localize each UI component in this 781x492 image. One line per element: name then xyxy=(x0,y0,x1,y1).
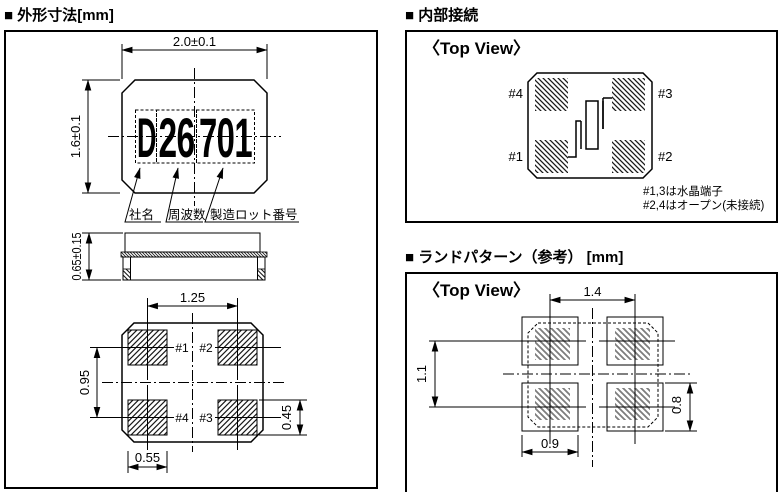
outline-section-title: ■ 外形寸法[mm] xyxy=(4,4,114,25)
dim-land-height: 0.8 xyxy=(665,383,697,431)
internal-connection-panel: 〈Top View〉 #4 #3 #1 #2 xyxy=(405,30,778,223)
internal-note-2: #2,4はオープン(未接続) xyxy=(643,198,765,212)
datasheet-page: ■ 外形寸法[mm] xyxy=(0,0,781,492)
dim-land-pitch-x-value: 1.4 xyxy=(583,284,601,299)
package-top-view: 2.0±0.1 1.6±0.1 D 26 701 xyxy=(68,34,299,222)
land-pattern: 1.4 xyxy=(414,284,697,467)
dim-pad-pitch-x-value: 1.25 xyxy=(180,290,205,305)
dim-thickness: 0.65±0.15 xyxy=(69,233,123,281)
internal-pad-4 xyxy=(535,78,568,111)
label-lot-number: 製造ロット番号 xyxy=(210,208,298,222)
land-pad-overlay-bl xyxy=(535,388,570,420)
dim-pad-width-value: 0.55 xyxy=(135,450,160,465)
outline-panel: 2.0±0.1 1.6±0.1 D 26 701 xyxy=(4,30,378,489)
dim-pad-width: 0.55 xyxy=(128,450,167,473)
dim-pad-pitch-y-value: 0.95 xyxy=(77,370,92,395)
internal-pad3-label: #3 xyxy=(658,86,672,101)
bottom-pad1-label: #1 xyxy=(175,341,189,355)
internal-view-label: 〈Top View〉 xyxy=(423,38,530,58)
label-company-name: 社名 xyxy=(129,207,154,222)
marking-lot-code: 701 xyxy=(199,106,252,169)
dim-body-width-value: 2.0±0.1 xyxy=(173,34,216,49)
internal-connection-drawing: 〈Top View〉 #4 #3 #1 #2 xyxy=(407,32,776,221)
internal-pad4-label: #4 xyxy=(509,86,523,101)
dim-pad-height-value: 0.45 xyxy=(279,405,294,430)
bottom-pad4-label: #4 xyxy=(175,411,189,425)
internal-package xyxy=(528,73,652,178)
internal-note-1: #1,3は水晶端子 xyxy=(643,185,723,198)
dim-land-width: 0.9 xyxy=(522,435,578,457)
internal-pad-1 xyxy=(535,140,568,173)
internal-pad2-label: #2 xyxy=(658,149,672,164)
bottom-pad2-label: #2 xyxy=(199,341,213,355)
land-pattern-panel: 〈Top View〉 1.4 xyxy=(405,272,778,492)
marking-company-code: D xyxy=(137,106,156,169)
internal-pad-3 xyxy=(612,78,645,111)
dim-body-height-value: 1.6±0.1 xyxy=(68,115,83,158)
land-section-title: ■ ランドパターン（参考） [mm] xyxy=(405,246,623,267)
internal-pad-2 xyxy=(612,140,645,173)
crystal-symbol xyxy=(568,98,612,157)
dim-thickness-value: 0.65±0.15 xyxy=(69,233,84,281)
dim-land-pitch-y: 1.1 xyxy=(414,341,435,407)
label-frequency: 周波数 xyxy=(168,207,206,222)
land-view-label: 〈Top View〉 xyxy=(423,280,530,300)
dim-land-pitch-x: 1.4 xyxy=(550,284,635,300)
land-pattern-drawing: 〈Top View〉 1.4 xyxy=(407,274,776,492)
dim-land-height-value: 0.8 xyxy=(669,396,684,414)
dim-land-width-value: 0.9 xyxy=(541,436,559,451)
land-pad-overlay-br xyxy=(615,388,650,420)
bottom-pad3-label: #3 xyxy=(199,411,213,425)
land-pad-overlay-tl xyxy=(535,328,570,360)
land-pad-overlay-tr xyxy=(615,328,650,360)
marking-frequency-code: 26 xyxy=(159,106,195,169)
package-bottom-view: 1.25 #1 xyxy=(77,290,307,473)
internal-pad1-label: #1 xyxy=(509,149,523,164)
internal-section-title: ■ 内部接続 xyxy=(405,4,478,25)
package-side-view: 0.65±0.15 xyxy=(69,233,267,281)
outline-drawing: 2.0±0.1 1.6±0.1 D 26 701 xyxy=(6,32,376,487)
dim-land-pitch-y-value: 1.1 xyxy=(414,365,429,383)
